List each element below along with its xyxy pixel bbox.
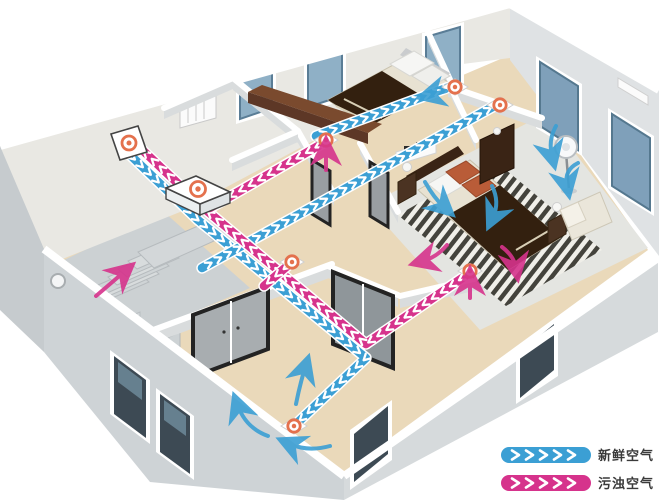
- vent-dot-icon: [126, 140, 131, 145]
- legend-item-exhaust: 污浊空气: [500, 473, 654, 492]
- ventilation-floorplan-figure: 新鲜空气 污浊空气: [0, 0, 660, 500]
- legend: 新鲜空气 污浊空气: [500, 445, 654, 492]
- vent-dot-icon: [453, 85, 457, 89]
- vent-dot-icon: [468, 269, 472, 273]
- legend-label-fresh: 新鲜空气: [598, 445, 654, 464]
- vent-dot-icon: [292, 424, 296, 428]
- floorplan-illustration: [0, 0, 660, 500]
- exterior-vent-cap-icon: [51, 274, 65, 288]
- legend-label-exhaust: 污浊空气: [598, 473, 654, 492]
- vent-dot-icon: [498, 103, 502, 107]
- lamp-icon: [403, 163, 412, 172]
- legend-item-fresh: 新鲜空气: [500, 445, 654, 464]
- fresh-air-arrow-swatch: [500, 446, 592, 464]
- exhaust-air-arrow-swatch: [500, 474, 592, 492]
- vent-dot-icon: [290, 260, 294, 264]
- vent-dot-icon: [195, 186, 200, 191]
- vent-dot-icon: [324, 138, 328, 142]
